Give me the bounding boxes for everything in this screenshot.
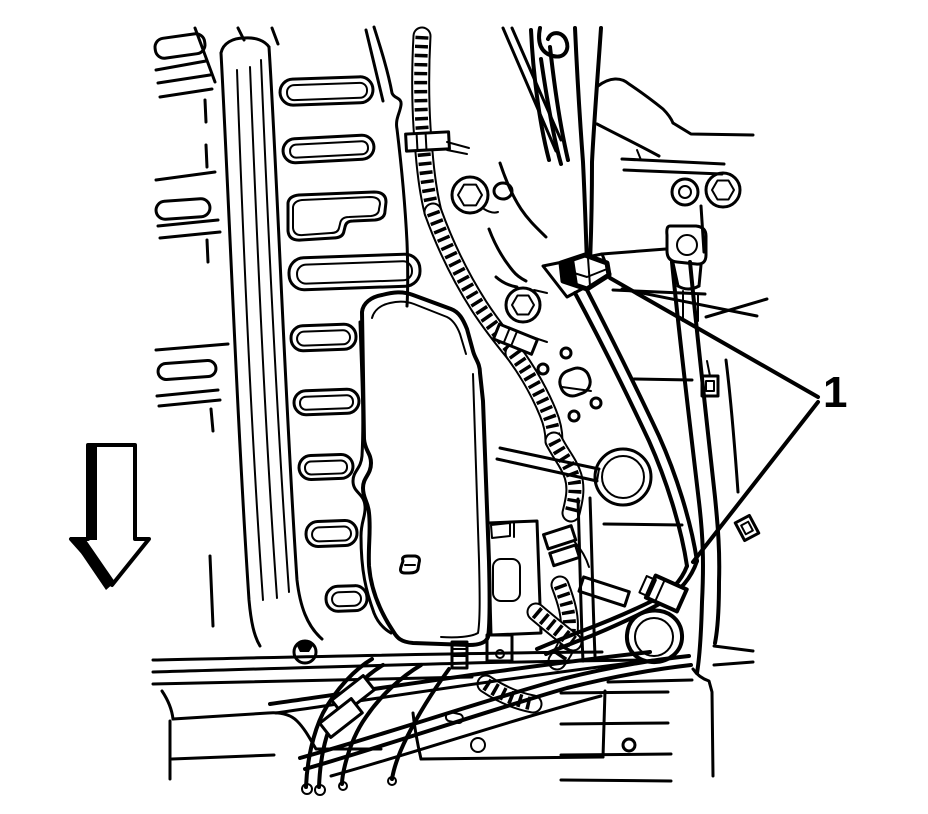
callout-1-label: 1 [823,368,847,417]
ribbed-pillar-channel [195,28,322,646]
harness-clamp-upper [406,132,450,151]
service-manual-page: 1 [0,0,928,814]
harness-retainer-clip-upper [561,255,609,289]
left-flange-brackets [154,33,228,406]
frame-clip [735,515,759,540]
crossmember-and-lines [153,577,691,795]
slotted-floor-panel [280,27,421,633]
callout-1: 1 [610,278,847,562]
down-direction-arrow [70,444,149,590]
underbody-wiring-illustration: 1 [0,0,928,814]
